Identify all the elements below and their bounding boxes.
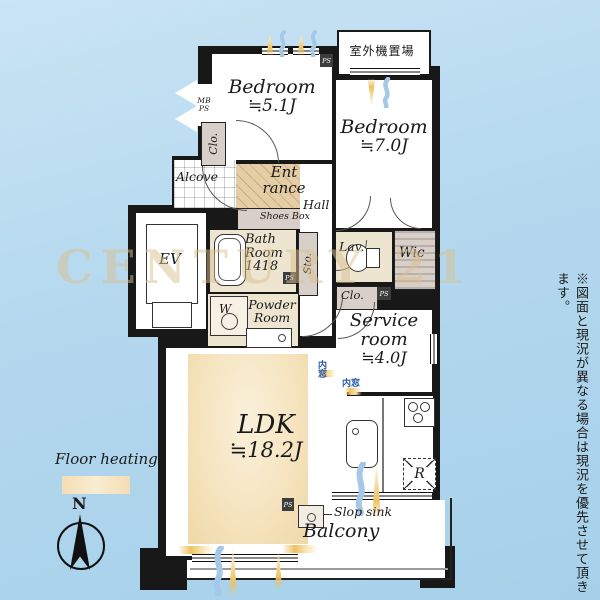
ps-box-top: PS [320, 54, 333, 67]
room-label-powder: Powder Room [244, 298, 300, 324]
refrigerator-space: R [403, 458, 436, 490]
hall-closet-label: Clo. [341, 289, 364, 301]
sink-faucet [352, 428, 359, 435]
stove-burner-2 [420, 402, 430, 412]
meterbox-ps-label: PS [199, 105, 209, 113]
storage-label: Sto. [303, 254, 314, 275]
room-label-service: Service room ≒4.0J [336, 312, 432, 367]
ldk-size: ≒18.2J [186, 439, 346, 461]
sunlight-icon [178, 546, 214, 554]
meterbox-door-leaf-1 [175, 80, 197, 106]
floorplan-canvas: Sto. MB PS Clo. PS PS PS PS [0, 0, 600, 600]
breeze-icon [307, 30, 320, 57]
inner-window-label-vertical: 内窓 [315, 360, 328, 378]
meterbox-recess: MB PS [196, 84, 212, 126]
balcony-rail-inner [190, 568, 448, 570]
kitchen-sink [346, 420, 378, 468]
bathroom-line3: 1418 [245, 260, 283, 274]
vanity-counter [246, 328, 292, 348]
bathroom-line2: Room [245, 247, 283, 261]
room-label-hall: Hall [303, 198, 329, 211]
balcony-rail-right [450, 498, 452, 580]
washer-label: W [219, 303, 231, 316]
room-label-entrance: Ent rance [240, 165, 328, 197]
toilet-tank [366, 248, 380, 268]
breeze-icon [379, 77, 393, 108]
sunlight-icon [344, 388, 362, 395]
bathtub-inner [218, 238, 241, 281]
stove [404, 398, 435, 427]
bedroom-small-name: Bedroom [212, 78, 332, 98]
entry-closet-label: Clo. [208, 133, 220, 155]
room-label-alcove: Alcove [176, 170, 218, 183]
breeze-icon [276, 30, 289, 57]
powder-line2: Room [244, 311, 300, 324]
room-label-bedroom-large: Bedroom ≒7.0J [336, 118, 432, 156]
room-label-wic: Wic [399, 246, 425, 260]
entrance-line2: rance [240, 181, 328, 197]
bedroom-small-size: ≒5.1J [212, 98, 332, 116]
window-ldk-balcony [332, 492, 432, 500]
outdoor-unit-label: 室外機置場 [337, 42, 427, 59]
bedroom-large-name: Bedroom [336, 118, 432, 138]
slop-sink-label: Slop sink [334, 505, 392, 518]
inner-window-label-horizontal: 内窓 [342, 376, 360, 389]
shoes-box-label: Shoes Box [238, 212, 332, 222]
room-label-bathroom: Bath Room 1418 [245, 233, 283, 274]
refrigerator-label: R [412, 467, 427, 482]
room-label-lavatory: Lav. [339, 240, 364, 253]
stove-burner-1 [408, 402, 418, 412]
floor-heating-legend-label: Floor heating [55, 452, 158, 468]
compass-north-label: N [72, 496, 87, 513]
floor-heating-swatch [62, 476, 130, 494]
ps-box-bath: PS [283, 272, 296, 284]
storage-closet: Sto. [298, 232, 318, 296]
vanity-faucet [278, 334, 286, 342]
bedroom-large-size: ≒7.0J [336, 138, 432, 156]
bathroom-line1: Bath [245, 233, 283, 247]
room-label-elevator: EV [159, 252, 181, 268]
window-bedroom-large [350, 68, 420, 76]
service-size: ≒4.0J [336, 350, 432, 367]
ps-box-balcony: PS [282, 498, 294, 511]
room-label-bedroom-small: Bedroom ≒5.1J [212, 78, 332, 116]
sunlight-icon [282, 545, 318, 553]
stove-burner-3 [413, 413, 423, 423]
service-name-line2: room [336, 331, 432, 350]
room-label-balcony: Balcony [303, 522, 379, 542]
elevator-counterweight [152, 302, 192, 328]
slop-sink-leader-line [323, 514, 332, 515]
bathtub [214, 234, 246, 286]
ps-box-closet: PS [377, 287, 391, 300]
room-label-ldk: LDK ≒18.2J [186, 412, 346, 461]
ldk-name: LDK [186, 412, 346, 439]
window-ldk-south [192, 554, 298, 562]
disclaimer-note: ※図面と現況が異なる場合は現況を優先させて頂きます。 [552, 272, 590, 594]
entry-closet: Clo. [201, 122, 226, 166]
kitchen-counter-edge [382, 398, 384, 492]
meterbox-door-leaf-2 [175, 106, 197, 132]
